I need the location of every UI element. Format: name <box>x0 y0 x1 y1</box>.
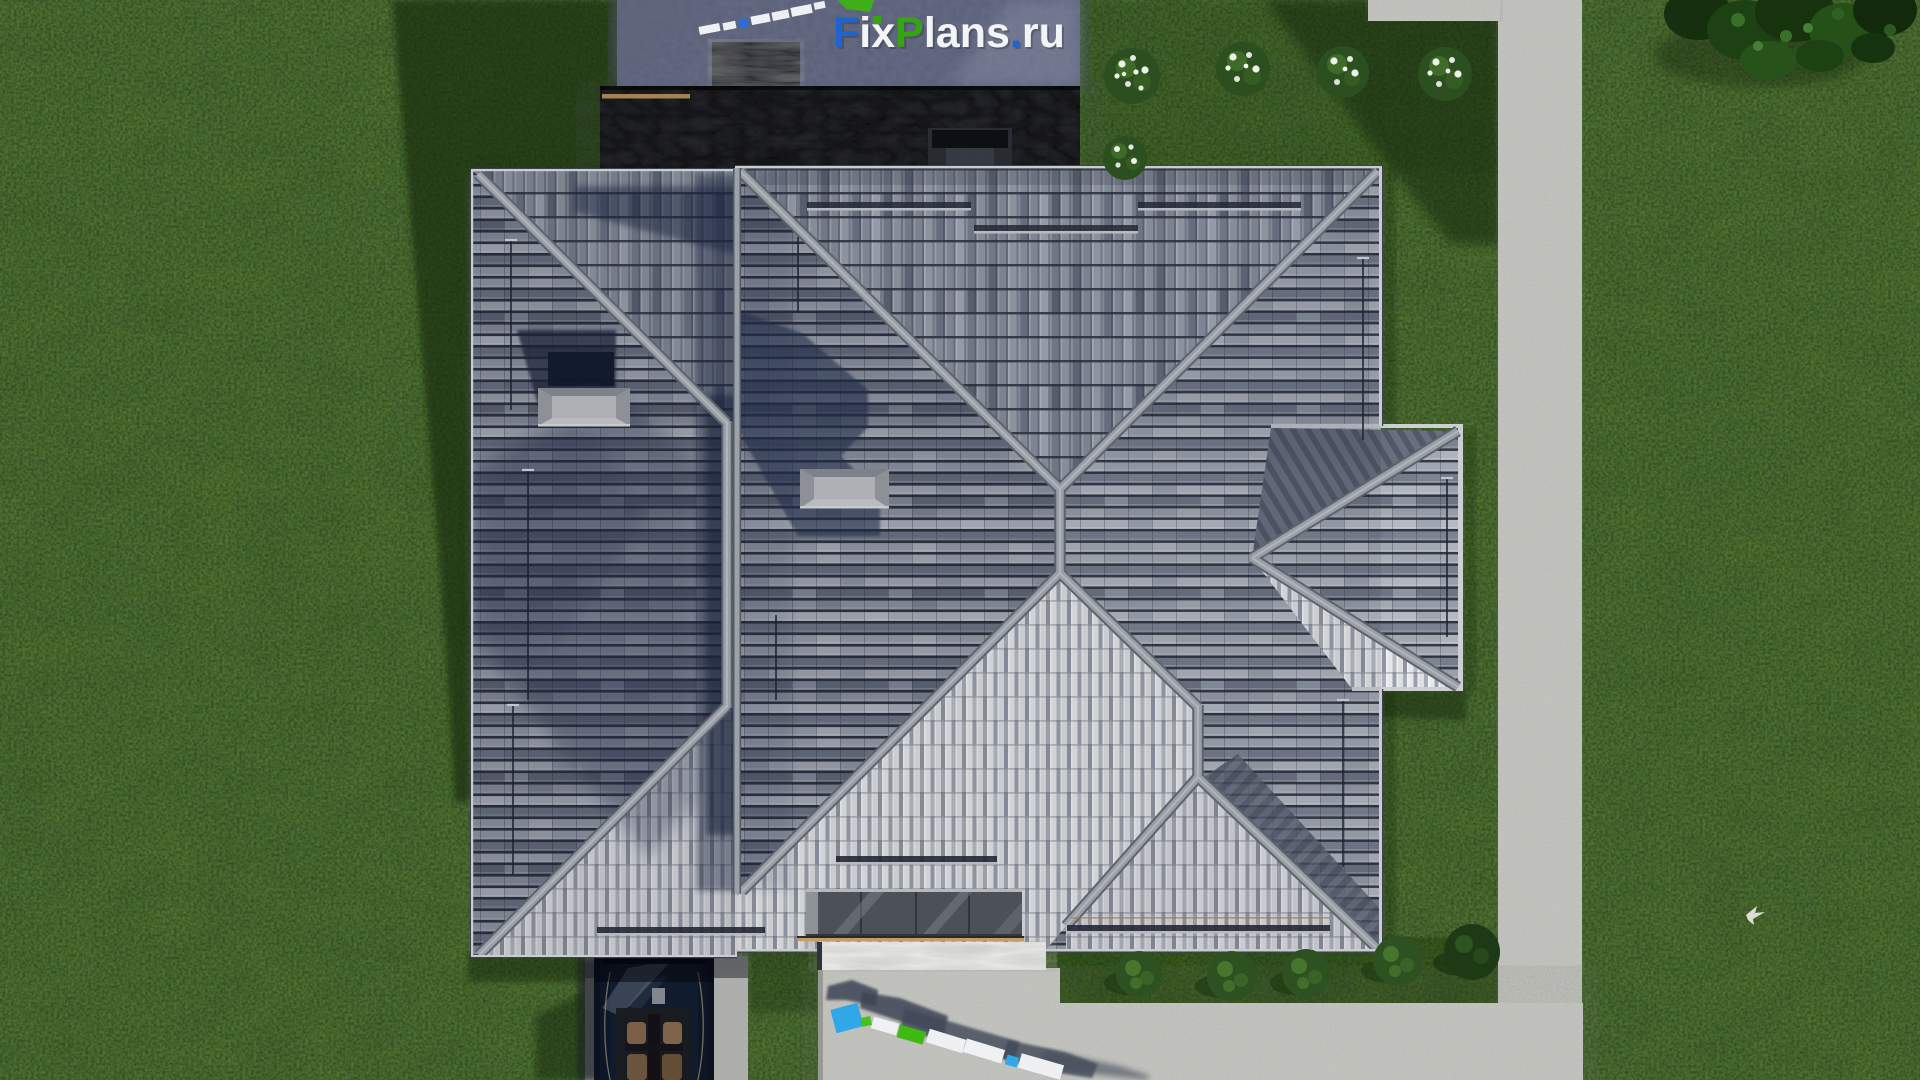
svg-text:FixPlans.ru: FixPlans.ru <box>833 9 1065 57</box>
